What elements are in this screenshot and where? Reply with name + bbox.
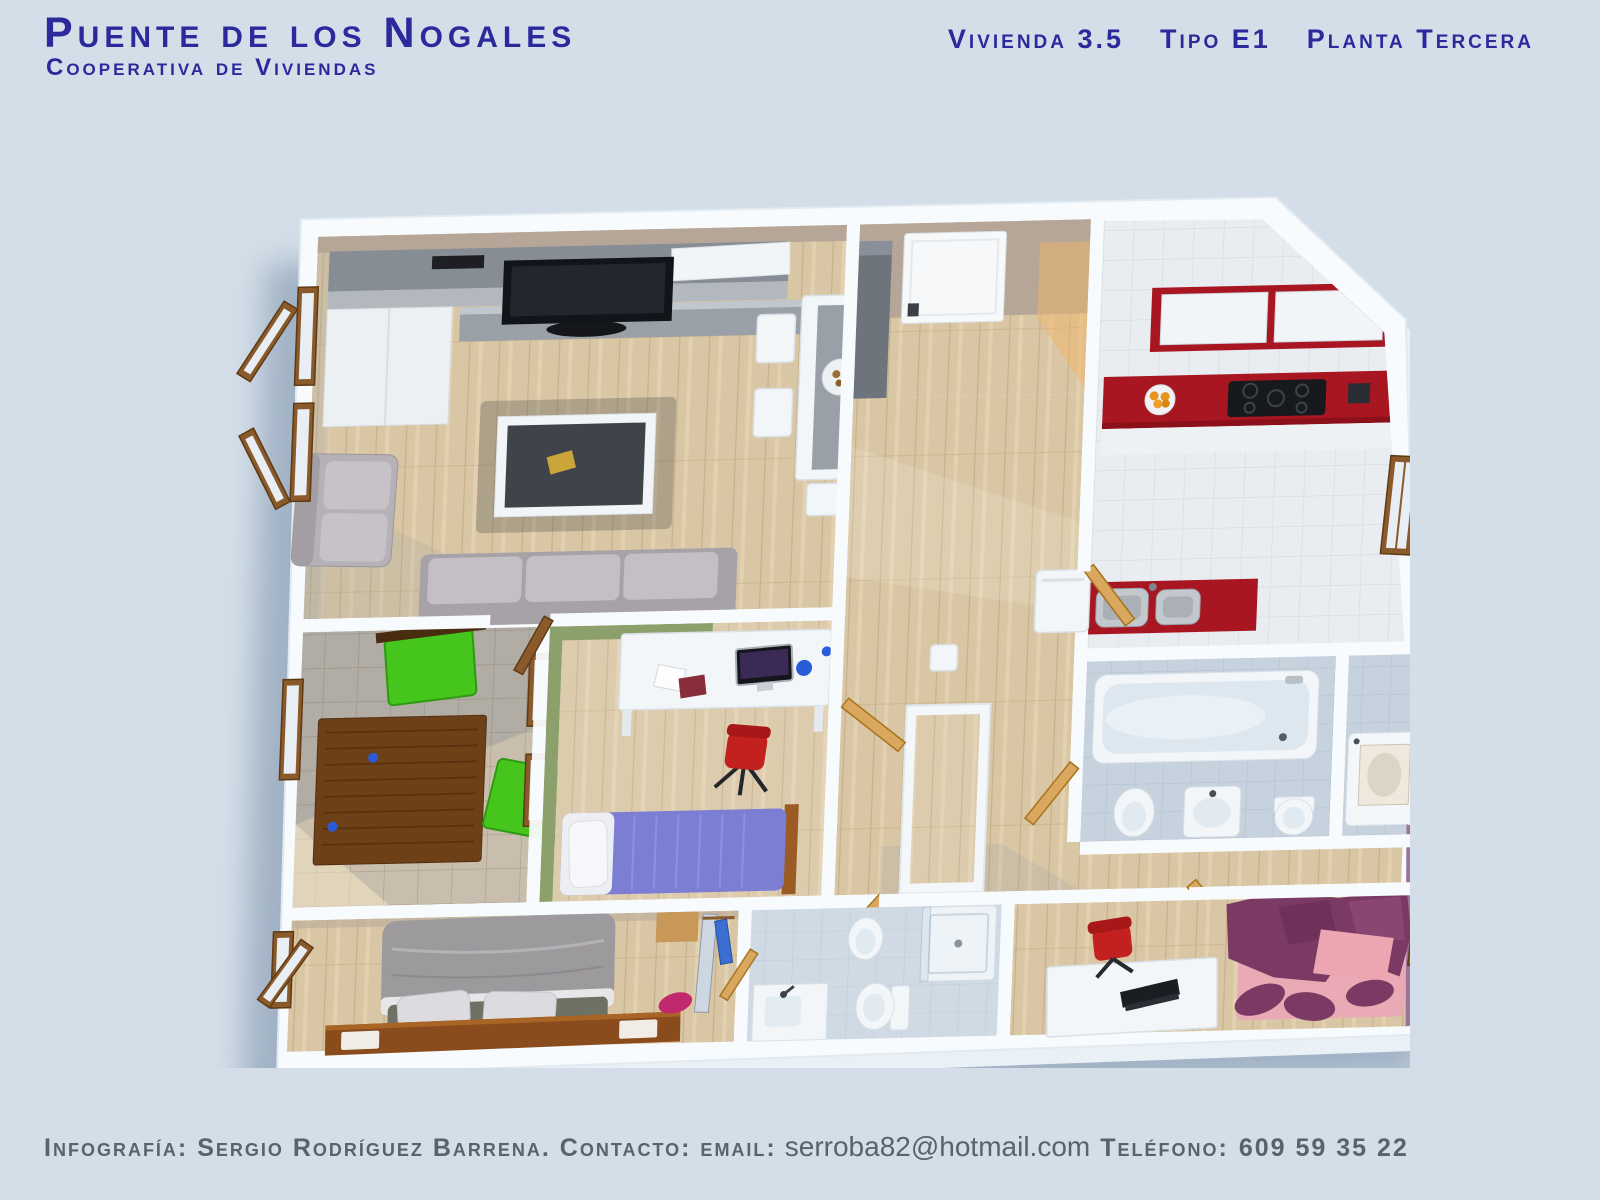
poster: Puente de los Nogales Cooperativa de Viv…	[0, 0, 1600, 1200]
nightstand	[341, 1030, 379, 1050]
pillow	[569, 819, 608, 888]
corridor-closet	[899, 704, 990, 894]
dining-chair	[753, 388, 793, 437]
wardrobe-shelf	[656, 911, 699, 942]
room-bathroom	[1080, 656, 1336, 842]
single-bed	[559, 804, 798, 899]
project-title: Puente de los Nogales	[44, 12, 576, 55]
washbasin	[1183, 786, 1241, 837]
washing-machine	[1345, 732, 1410, 826]
terrace-table	[313, 715, 487, 865]
project-subtitle: Cooperativa de Viviendas	[46, 56, 378, 80]
vanity	[752, 983, 828, 1041]
phone-label: Teléfono:	[1100, 1134, 1229, 1162]
stool	[930, 644, 958, 671]
floor-plan-render	[190, 148, 1410, 1068]
dining-chair	[756, 314, 796, 363]
room-office-bedroom	[539, 607, 833, 902]
room-ensuite	[747, 904, 1002, 1041]
room-master-bedroom	[255, 908, 739, 1057]
type-label: Tipo E1	[1160, 26, 1271, 53]
cooktop	[1227, 379, 1326, 417]
papers	[679, 674, 707, 698]
bathtub	[1092, 670, 1319, 763]
nightstand	[619, 1019, 657, 1039]
toilet	[855, 983, 910, 1031]
laundry-niche	[1342, 654, 1410, 836]
kitchen-counter	[1101, 370, 1394, 455]
entry-door	[901, 231, 1006, 323]
soundbar	[432, 255, 484, 269]
pink-sheet	[1313, 929, 1394, 981]
floor-label: Planta Tercera	[1307, 26, 1534, 53]
unit-info: Vivienda 3.5 Tipo E1 Planta Tercera	[948, 26, 1534, 53]
contact-email: serroba82@hotmail.com	[785, 1131, 1090, 1162]
footer-credit: Infografía: Sergio Rodríguez Barrena. Co…	[44, 1130, 1409, 1164]
coffee-maker	[1348, 383, 1371, 404]
wall-shelf	[672, 242, 790, 281]
coffee-table	[494, 413, 656, 517]
contact-phone: 609 59 35 22	[1239, 1134, 1409, 1162]
room-living-dining	[227, 223, 931, 631]
shower	[920, 906, 997, 982]
credit-text: Infografía: Sergio Rodríguez Barrena. Co…	[44, 1134, 777, 1162]
unit-label: Vivienda 3.5	[948, 26, 1124, 53]
bed3	[1222, 889, 1410, 1027]
